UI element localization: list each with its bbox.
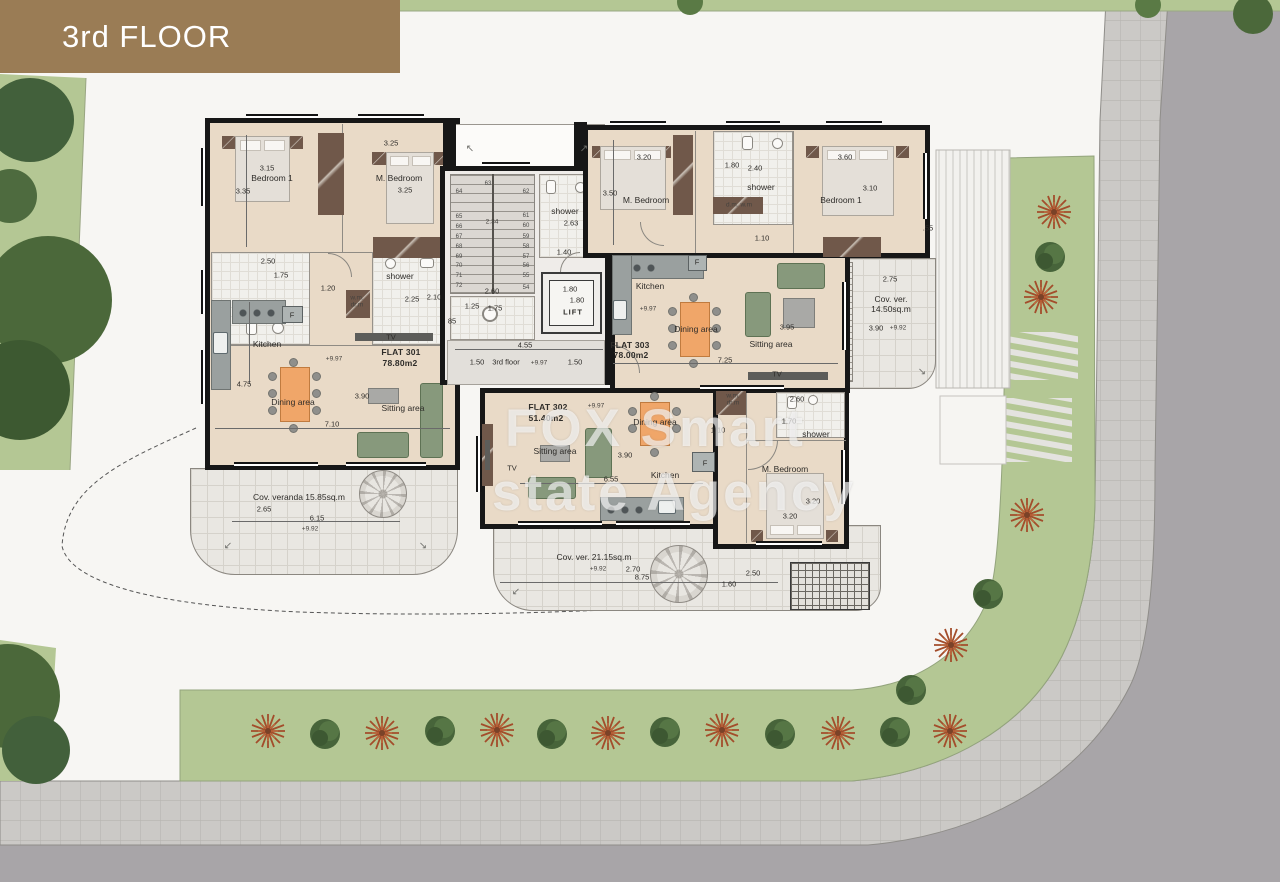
stair-number: 70 xyxy=(456,263,463,269)
flat-label: FLAT 303 xyxy=(610,340,649,350)
dimension-label: F xyxy=(290,311,295,320)
dimension-label: 1.25 xyxy=(465,302,480,311)
stair-number: 72 xyxy=(456,283,463,289)
dimension-label: 2.63 xyxy=(564,219,579,228)
dimension-label: 2.40 xyxy=(748,164,763,173)
dimension-label: 2.50 xyxy=(746,569,761,578)
direction-arrow-icon: ↘ xyxy=(918,367,926,378)
dimension-label: 3.35 xyxy=(236,187,251,196)
dimension-label: 3.95 xyxy=(780,323,795,332)
stair-number: 56 xyxy=(523,263,530,269)
dimension-label: 1.20 xyxy=(321,284,336,293)
dimension-label: 3.25 xyxy=(384,139,399,148)
stair-number: 54 xyxy=(523,285,530,291)
room-label: Cov. ver. xyxy=(875,294,908,304)
direction-arrow-icon: ↖ xyxy=(466,144,474,155)
stair-number: 65 xyxy=(456,214,463,220)
room-label: Kitchen xyxy=(636,281,664,291)
floor-title: 3rd FLOOR xyxy=(62,19,231,54)
annotation-label: +9.92 xyxy=(590,566,606,573)
flat-label: FLAT 301 xyxy=(381,347,420,357)
dimension-label: 85 xyxy=(448,317,456,326)
dimension-label: 8.75 xyxy=(635,573,650,582)
stair-number: 68 xyxy=(456,244,463,250)
stair-number: 59 xyxy=(523,234,530,240)
dimension-label: 1.80 xyxy=(725,161,740,170)
stair-number: 60 xyxy=(523,223,530,229)
room-label: M. Bedroom xyxy=(623,195,669,205)
dimension-label: 3.10 xyxy=(863,184,878,193)
room-label: Dining area xyxy=(271,397,314,407)
stair-number: 67 xyxy=(456,234,463,240)
dimension-label: TV xyxy=(772,370,782,379)
annotation-label: dr.m xyxy=(351,302,364,309)
dimension-label: 1.10 xyxy=(755,234,770,243)
stair-number: 57 xyxy=(523,254,530,260)
dimension-label: 3.25 xyxy=(398,186,413,195)
room-label: shower xyxy=(802,429,829,439)
room-label: shower xyxy=(551,206,578,216)
room-label: shower xyxy=(386,271,413,281)
annotation-label: 2.34 xyxy=(486,219,499,226)
dimension-label: 2.50 xyxy=(261,257,276,266)
annotation-label: +9.97 xyxy=(326,356,342,363)
dimension-label: 1.50 xyxy=(568,358,583,367)
dimension-label: 1.75 xyxy=(488,304,503,313)
stair-number: 63 xyxy=(485,181,492,187)
dimension-label: 2.60 xyxy=(485,287,500,296)
annotation-label: +9.97 xyxy=(640,306,656,313)
annotation-label: +9.92 xyxy=(890,325,906,332)
dimension-label: 1.40 xyxy=(557,248,572,257)
dimension-label: 2.25 xyxy=(405,295,420,304)
dimension-label: 6.15 xyxy=(310,514,325,523)
dimension-label: 2.10 xyxy=(427,293,442,302)
room-label: 14.50sq.m xyxy=(871,304,911,314)
dimension-label: 4.75 xyxy=(237,380,252,389)
dimension-label: 7.10 xyxy=(325,420,340,429)
stair-number: 55 xyxy=(523,273,530,279)
room-label: Bedroom 1 xyxy=(251,173,293,183)
dimension-label: 3.90 xyxy=(355,392,370,401)
room-label: Kitchen xyxy=(253,339,281,349)
room-label: Dining area xyxy=(674,324,717,334)
direction-arrow-icon: ↘ xyxy=(419,541,427,552)
flat-label: 78.00m2 xyxy=(614,350,649,360)
stair-number: 64 xyxy=(456,189,463,195)
dimension-label: 3.60 xyxy=(838,153,853,162)
dimension-label: 1.50 xyxy=(470,358,485,367)
stair-number: 71 xyxy=(456,273,463,279)
dimension-label: 2.65 xyxy=(257,505,272,514)
dimension-label: 3rd floor xyxy=(492,358,520,367)
stair-number: 58 xyxy=(523,244,530,250)
stair-number: 61 xyxy=(523,213,530,219)
dimension-label: 1.60 xyxy=(722,580,737,589)
dimension-label: .55 xyxy=(923,224,933,233)
room-label: Sitting area xyxy=(382,403,425,413)
room-label: Sitting area xyxy=(750,339,793,349)
dimension-label: TV xyxy=(386,333,396,342)
annotation-label: d.m. w.m xyxy=(726,202,752,209)
dimension-label: 3.90 xyxy=(869,324,884,333)
dimension-label: 3.50 xyxy=(603,189,618,198)
dimension-label: 7.25 xyxy=(718,356,733,365)
watermark-line2: state Agency xyxy=(492,462,856,523)
stair-number: 66 xyxy=(456,224,463,230)
watermark-line1: FOX Smart xyxy=(505,398,806,459)
dimension-label: 3.20 xyxy=(637,153,652,162)
dimension-label: 1.80 xyxy=(563,285,578,294)
room-label: Cov. veranda 15.85sq.m xyxy=(253,492,345,502)
dimension-label: 2.75 xyxy=(883,275,898,284)
direction-arrow-icon: ↙ xyxy=(224,541,232,552)
dimension-label: 3.15 xyxy=(260,164,275,173)
dimension-label: 4.55 xyxy=(518,341,533,350)
direction-arrow-icon: ↙ xyxy=(512,587,520,598)
lift-label: LIFT xyxy=(563,308,583,317)
room-label: shower xyxy=(747,182,774,192)
dimension-label: 1.80 xyxy=(570,296,585,305)
flat-label: 78.80m2 xyxy=(383,358,418,368)
dimension-label: 1.75 xyxy=(274,271,289,280)
annotation-label: w.m. xyxy=(350,295,363,302)
direction-arrow-icon: ↗ xyxy=(580,144,588,155)
floor-plan-canvas: 3.15Bedroom 13.353.25M. Bedroom3.252.501… xyxy=(0,0,1280,882)
annotation-label: +9.97 xyxy=(531,360,547,367)
floor-banner: 3rd FLOOR xyxy=(0,0,400,73)
stair-number: 62 xyxy=(523,189,530,195)
stair-number: 69 xyxy=(456,254,463,260)
annotation-label: +9.92 xyxy=(302,526,318,533)
dimension-label: F xyxy=(695,258,700,267)
room-label: Bedroom 1 xyxy=(820,195,862,205)
room-label: M. Bedroom xyxy=(376,173,422,183)
room-label: Cov. ver. 21.15sq.m xyxy=(557,552,632,562)
